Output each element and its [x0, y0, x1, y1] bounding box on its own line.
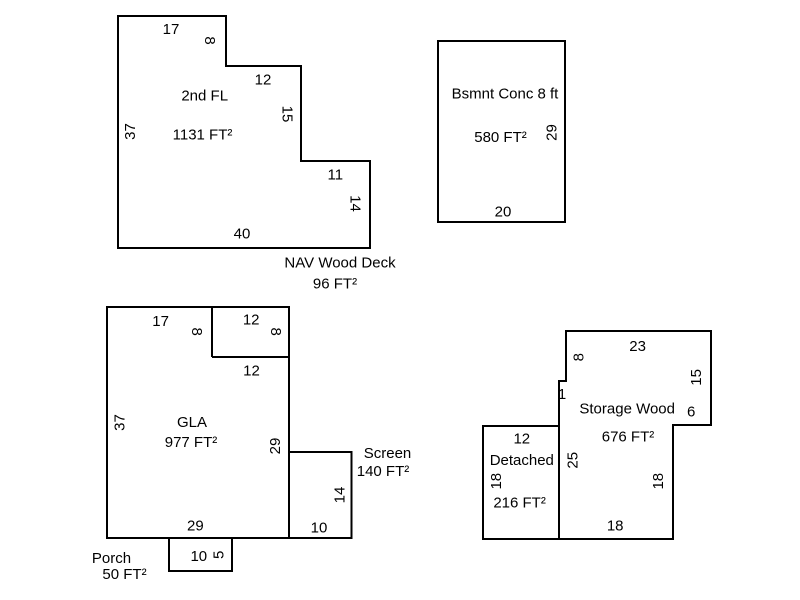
svg-text:50 FT²: 50 FT²	[102, 566, 146, 583]
svg-text:8: 8	[267, 328, 284, 336]
svg-text:14: 14	[331, 487, 348, 504]
svg-text:Bsmnt Conc 8 ft: Bsmnt Conc 8 ft	[452, 85, 560, 102]
svg-text:18: 18	[488, 473, 505, 490]
svg-text:96 FT²: 96 FT²	[313, 275, 357, 292]
svg-text:140 FT²: 140 FT²	[357, 463, 410, 480]
svg-text:17: 17	[152, 313, 169, 330]
svg-text:NAV Wood Deck: NAV Wood Deck	[284, 254, 396, 271]
svg-text:17: 17	[163, 21, 180, 38]
svg-text:40: 40	[234, 225, 251, 242]
svg-text:8: 8	[188, 328, 205, 336]
svg-text:10: 10	[190, 548, 207, 565]
svg-text:Porch: Porch	[92, 550, 131, 567]
svg-text:GLA: GLA	[177, 414, 207, 431]
svg-text:Screen: Screen	[364, 445, 412, 462]
svg-text:15: 15	[279, 106, 296, 123]
svg-text:5: 5	[211, 551, 228, 559]
svg-text:15: 15	[688, 369, 705, 386]
svg-text:37: 37	[111, 414, 128, 431]
svg-text:29: 29	[543, 124, 560, 141]
svg-text:29: 29	[267, 438, 284, 455]
svg-text:37: 37	[122, 123, 139, 140]
svg-text:25: 25	[564, 452, 581, 469]
svg-text:12: 12	[255, 71, 272, 88]
svg-text:6: 6	[687, 404, 695, 421]
svg-text:2nd FL: 2nd FL	[181, 88, 228, 105]
svg-text:1131 FT²: 1131 FT²	[173, 126, 233, 143]
svg-text:11: 11	[328, 166, 344, 183]
svg-text:8: 8	[571, 353, 588, 361]
svg-text:977 FT²: 977 FT²	[165, 434, 218, 451]
svg-text:10: 10	[311, 520, 328, 537]
svg-text:14: 14	[347, 195, 364, 212]
svg-text:20: 20	[495, 203, 512, 220]
svg-text:18: 18	[650, 473, 667, 490]
svg-text:29: 29	[187, 518, 204, 535]
svg-text:23: 23	[629, 338, 646, 355]
svg-text:Storage Wood: Storage Wood	[579, 400, 675, 417]
svg-text:1: 1	[558, 386, 566, 403]
svg-text:216 FT²: 216 FT²	[493, 494, 546, 511]
svg-text:12: 12	[243, 362, 260, 379]
svg-text:676 FT²: 676 FT²	[602, 428, 655, 445]
svg-text:18: 18	[607, 517, 624, 534]
svg-text:580 FT²: 580 FT²	[474, 129, 527, 146]
svg-text:12: 12	[243, 312, 260, 329]
svg-text:Detached: Detached	[490, 452, 554, 469]
svg-text:8: 8	[201, 36, 218, 44]
svg-text:12: 12	[513, 430, 530, 447]
